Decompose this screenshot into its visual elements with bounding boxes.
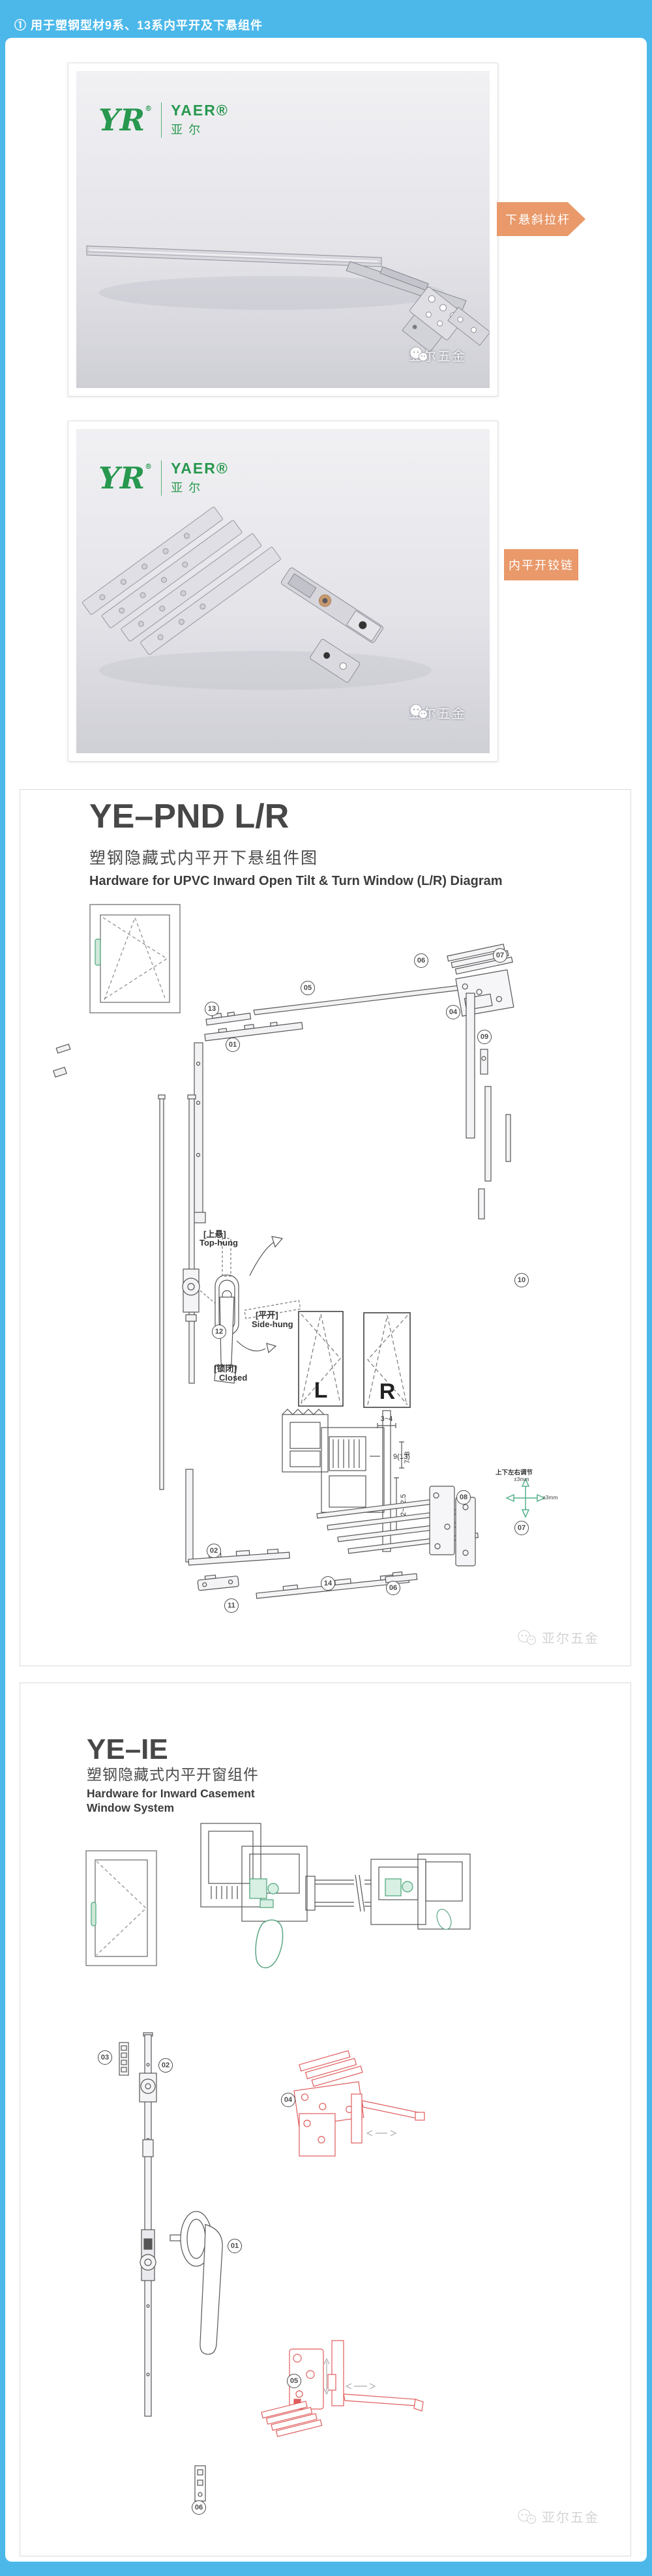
dim-3-4: 3~4 [381, 1415, 393, 1423]
part-marker: 09 [477, 1030, 492, 1044]
casement-window-icon [86, 1851, 156, 1966]
left-letter: L [314, 1378, 328, 1403]
gear-leader-line [200, 1291, 217, 1305]
part-marker: 04 [281, 2093, 295, 2107]
brand-names: YAER® 亚尔 [171, 102, 229, 138]
watermark: 亚尔五金 [517, 2507, 599, 2526]
label-tilt-en: Top-hung [200, 1238, 238, 1248]
brand-name-cn: 亚尔 [171, 479, 229, 496]
hinge-plates-fan [82, 493, 281, 669]
pnd-exploded-diagram: L R 3~4 [20, 790, 630, 1666]
adjust-horizontal-value: ±3mm [542, 1494, 558, 1501]
left-drive-bars [158, 1095, 200, 1490]
product-photo-card-hinge: YR® YAER® 亚尔 [68, 421, 498, 762]
page-header: ① 用于塑钢型材9系、13系内平开及下悬组件 [14, 16, 263, 33]
part-marker: 14 [321, 1576, 335, 1591]
top-extension-rod [254, 985, 461, 1015]
part-marker: 06 [414, 953, 428, 968]
wechat-bubbles-icon [409, 346, 430, 363]
page: ① 用于塑钢型材9系、13系内平开及下悬组件 YR® YAER® 亚尔 [0, 0, 652, 2576]
pnd-subtitle-cn: 塑钢隐藏式内平开下悬组件图 [89, 845, 318, 869]
ie-title: YE–IE [87, 1733, 168, 1766]
ie-subtitle-cn: 塑钢隐藏式内平开窗组件 [87, 1762, 259, 1784]
brand-mark: YR® [98, 463, 152, 493]
part-marker: 06 [192, 2500, 206, 2515]
brand-logo: YR® YAER® 亚尔 [98, 102, 229, 138]
part-marker: 01 [226, 1038, 240, 1052]
tag-tilt-stay-rod: 下悬斜拉杆 [497, 202, 585, 236]
dim-7-8: 7~8 [404, 1452, 411, 1464]
pnd-subtitle-en: Hardware for UPVC Inward Open Tilt & Tur… [89, 874, 503, 889]
tilt-turn-window-icon [90, 905, 180, 1013]
watermark-text: 亚尔五金 [542, 2507, 599, 2526]
part-marker: 05 [301, 981, 315, 995]
product-photo-card-tilt-stay: YR® YAER® 亚尔 [68, 63, 498, 397]
watermark-text: 亚尔五金 [542, 1628, 599, 1647]
adjust-caption: 上下左右调节 [496, 1467, 533, 1476]
watermark: 亚尔五金 [409, 346, 466, 365]
brand-divider [161, 460, 162, 496]
adjustment-cross-icon [507, 1479, 544, 1517]
part-marker: 08 [456, 1490, 471, 1505]
watermark: 亚尔五金 [517, 1628, 599, 1647]
small-striker-parts [53, 1044, 70, 1077]
bottom-right-hinge-cluster [317, 1486, 478, 1566]
brand-name-en: YAER® [171, 460, 229, 477]
ye-pnd-card: L R 3~4 [20, 789, 631, 1666]
brand-logo: YR® YAER® 亚尔 [98, 460, 229, 496]
part-marker: 11 [224, 1598, 239, 1613]
part-marker: 02 [158, 2058, 173, 2073]
adjust-vertical-value: ±3mm [514, 1476, 529, 1482]
top-right-corner-cluster [447, 943, 514, 1219]
part-marker: 03 [98, 2050, 112, 2065]
part-marker: 07 [493, 948, 507, 963]
wechat-bubbles-icon [517, 2508, 538, 2525]
ie-subtitle-en-line1: Hardware for Inward Casement [87, 1787, 255, 1801]
part-marker: 12 [212, 1325, 226, 1339]
espagnolette-bar [119, 2033, 205, 2501]
tag-casement-hinge: 内平开铰链 [504, 549, 578, 580]
part-marker: 07 [514, 1521, 529, 1535]
part-marker: 13 [205, 1002, 219, 1016]
pvc-profile-section [282, 1409, 404, 1551]
part-marker: 10 [514, 1273, 529, 1287]
part-marker: 01 [228, 2239, 242, 2253]
registered-icon: ® [145, 104, 152, 113]
watermark: 亚尔五金 [409, 703, 466, 722]
registered-icon: ® [145, 462, 152, 471]
bottom-left-corner-bar [186, 1469, 289, 1591]
brand-divider [161, 102, 162, 138]
ie-subtitle-en-line2: Window System [87, 1801, 174, 1815]
product-photo-hinge: YR® YAER® 亚尔 [76, 429, 490, 753]
brand-name-en: YAER® [171, 102, 229, 119]
corner-drive-assembly [192, 1010, 303, 1223]
part-marker: 06 [386, 1581, 400, 1595]
brand-mark: YR® [98, 105, 152, 135]
right-letter: R [379, 1379, 396, 1404]
brand-name-cn: 亚尔 [171, 121, 229, 138]
red-top-hinge [294, 2048, 424, 2156]
product-photo-tilt-stay: YR® YAER® 亚尔 [76, 71, 490, 388]
window-handle [170, 2211, 222, 2354]
pnd-title: YE–PND L/R [89, 797, 289, 836]
label-closed-en: Closed [219, 1373, 247, 1383]
brand-names: YAER® 亚尔 [171, 460, 229, 496]
label-turn-en: Side-hung [252, 1319, 293, 1329]
red-bottom-hinge [261, 2341, 423, 2439]
part-marker: 02 [207, 1544, 221, 1558]
part-marker: 04 [446, 1005, 460, 1019]
wechat-bubbles-icon [517, 1629, 538, 1646]
part-marker: 05 [287, 2374, 301, 2388]
wechat-bubbles-icon [409, 703, 430, 720]
frame-cross-section [201, 1823, 470, 1968]
